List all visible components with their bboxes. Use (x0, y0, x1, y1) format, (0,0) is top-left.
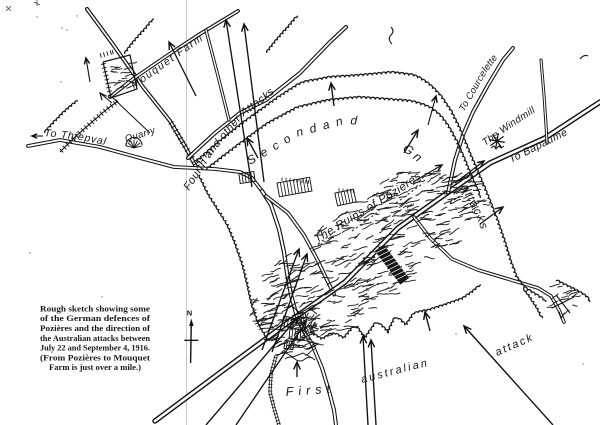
svg-text:the Australian attacks between: the Australian attacks between (40, 333, 150, 343)
svg-text:Pozières and the direction of: Pozières and the direction of (40, 323, 150, 333)
svg-text:N: N (187, 309, 192, 318)
svg-text:July 22 and September 4, 1916.: July 22 and September 4, 1916. (40, 343, 150, 353)
svg-text:Farm is just over a mile.): Farm is just over a mile.) (49, 362, 141, 372)
svg-text:Rough sketch showing some: Rough sketch showing some (40, 303, 150, 313)
svg-text:of the German defences of: of the German defences of (40, 313, 150, 323)
